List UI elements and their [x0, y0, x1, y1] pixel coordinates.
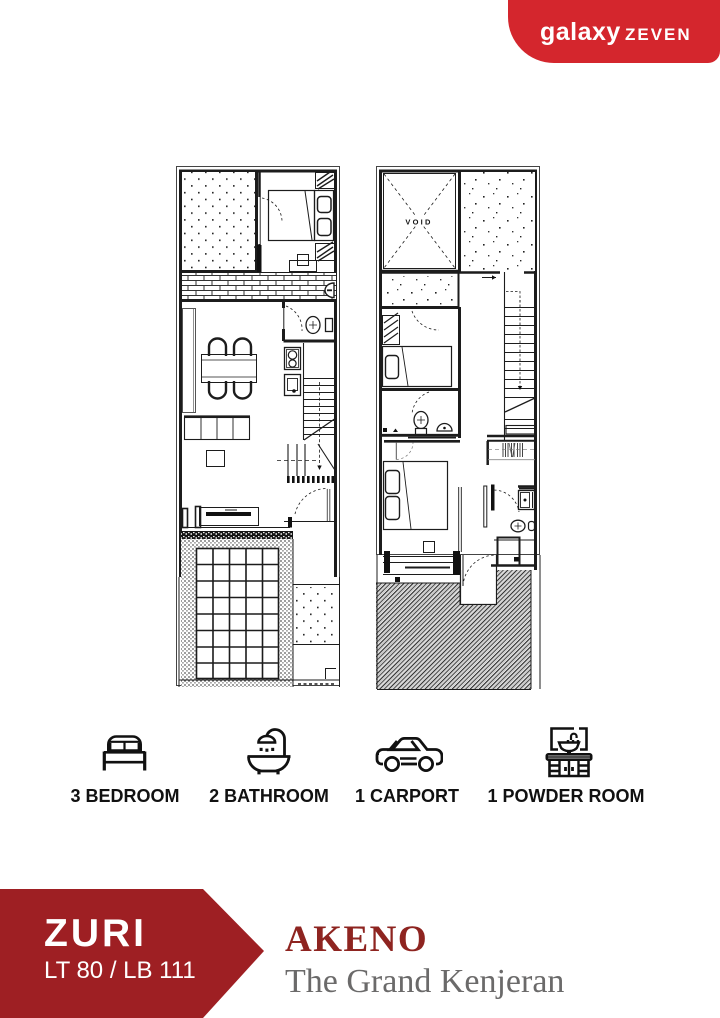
svg-text:VOID: VOID — [405, 218, 432, 227]
